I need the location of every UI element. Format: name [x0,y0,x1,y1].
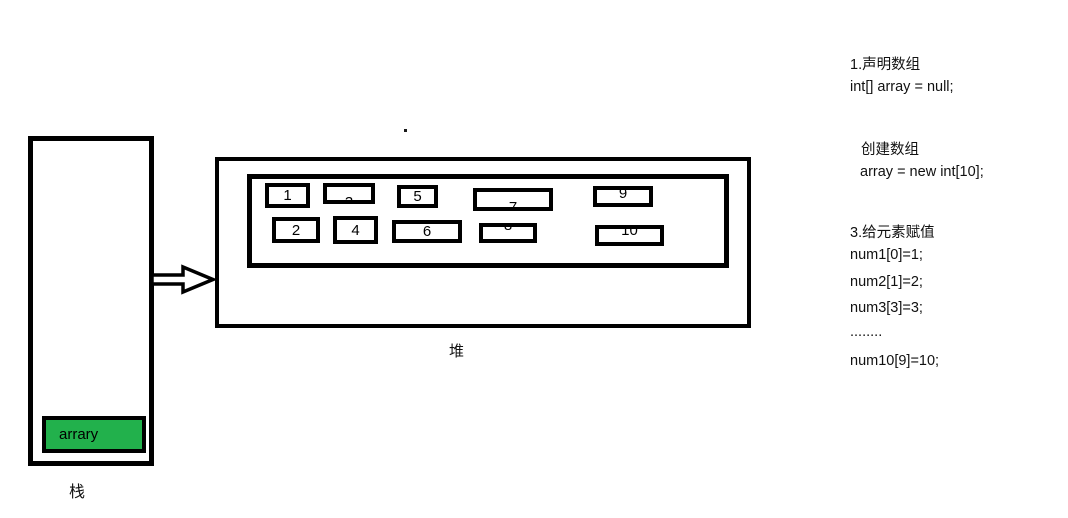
array-variable-label: arrary [59,426,98,443]
heap-label: 堆 [449,340,464,361]
heap-cell-7: 7 [473,188,553,211]
code-note-line: num2[1]=2; [850,274,923,290]
array-variable-box: arrary [42,416,146,453]
code-note-line: num1[0]=1; [850,247,923,263]
heap-cell-value: 6 [423,223,431,240]
code-note-line: 3.给元素赋值 [850,221,935,242]
heap-cell-9: 9 [593,186,653,207]
heap-cell-value: 4 [351,222,359,239]
code-note-line: ........ [850,324,882,340]
heap-cell-value: 3 [345,194,353,204]
heap-cell-value: 7 [509,199,517,211]
heap-cell-value: 1 [283,187,291,204]
heap-cell-4: 4 [333,216,378,244]
code-note-line: array = new int[10]; [860,164,984,180]
heap-cell-value: 10 [621,225,638,239]
heap-cell-1: 1 [265,183,310,208]
memory-diagram-canvas: arrary 栈 1 3 5 7 9 2 4 6 8 10 堆 1.声明数组 i… [0,0,1068,518]
heap-cell-value: 9 [619,186,627,202]
heap-cell-8: 8 [479,223,537,243]
stack-label: 栈 [69,478,85,502]
code-note-line: 创建数组 [861,138,919,159]
code-note-line: 1.声明数组 [850,53,920,74]
code-note-line: int[] array = null; [850,79,954,95]
code-note-line: num10[9]=10; [850,353,939,369]
heap-cell-10: 10 [595,225,664,246]
code-note-line: num3[3]=3; [850,300,923,316]
heap-cell-3: 3 [323,183,375,204]
heap-cell-5: 5 [397,185,438,208]
heap-cell-value: 8 [504,223,512,234]
heap-cell-6: 6 [392,220,462,243]
heap-cell-value: 2 [292,222,300,239]
stray-dot-mark [404,129,407,132]
reference-arrow-icon [150,262,218,298]
heap-cell-value: 5 [413,188,421,205]
heap-cell-2: 2 [272,217,320,243]
